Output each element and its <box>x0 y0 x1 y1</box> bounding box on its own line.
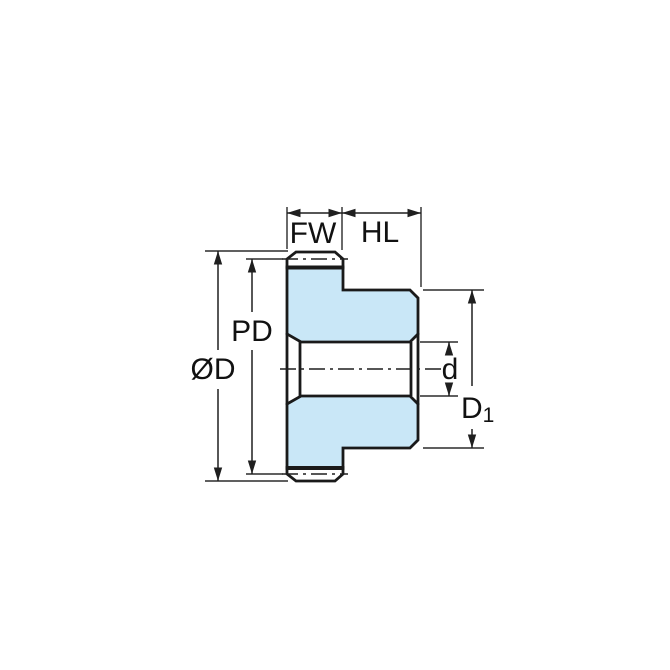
label-face-width: FW <box>290 217 337 250</box>
gear-body-lower <box>287 396 418 468</box>
label-bore-diameter: d <box>442 353 459 386</box>
label-outer-diameter: ØD <box>191 353 236 386</box>
gear-outline <box>286 252 418 481</box>
label-hub-diameter: D1 <box>461 392 494 427</box>
gear-body-upper <box>287 268 418 342</box>
label-hub-diameter-subscript: 1 <box>483 404 495 427</box>
label-hub-diameter-main: D <box>461 392 483 425</box>
diagram-canvas: FW HL PD ØD d D1 <box>0 0 670 670</box>
label-hub-length: HL <box>361 216 399 249</box>
label-pitch-diameter: PD <box>231 315 273 348</box>
gear-dimension-diagram: FW HL PD ØD d D1 <box>0 0 670 670</box>
